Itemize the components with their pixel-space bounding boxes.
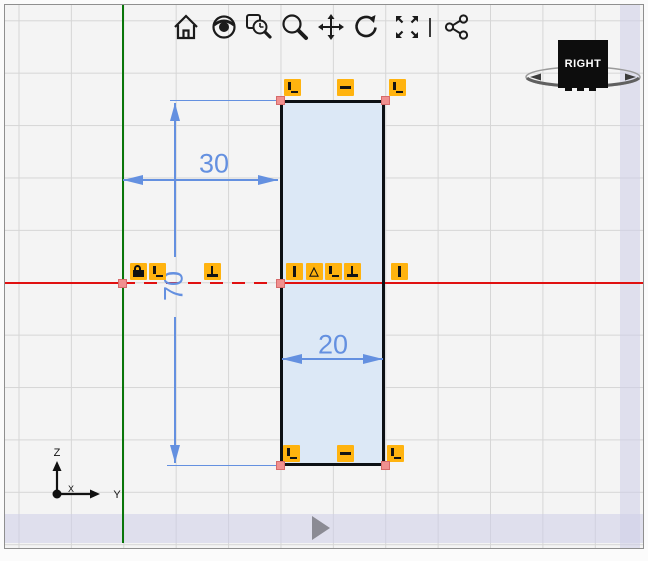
orientation-triad: Z Y X [27, 443, 127, 515]
zoom-icon[interactable] [280, 12, 310, 42]
dimension-70-line-lower[interactable] [174, 317, 176, 463]
zoom-window-icon[interactable] [244, 12, 274, 42]
dimension-70-line-upper[interactable] [174, 103, 176, 257]
constraint-horizontal-badge[interactable] [337, 79, 354, 96]
constraint-horizontal-badge[interactable] [337, 445, 354, 462]
dimension-20-arrow-left [282, 354, 302, 364]
view-cube-hidden-edge [565, 88, 572, 91]
sketch-vertex-point[interactable] [381, 96, 390, 105]
view-cube-hidden-edge [589, 88, 596, 91]
dimension-70-arrow-down [170, 445, 180, 463]
constraint-perpendicular-badge[interactable] [204, 263, 221, 280]
sketch-viewport: 30 70 20 △ [4, 4, 644, 549]
constraint-coincident-badge[interactable] [325, 263, 342, 280]
dimension-30-arrow-left [123, 175, 143, 185]
constraint-coincident-badge[interactable] [149, 263, 166, 280]
share-view-icon[interactable] [442, 12, 472, 42]
constraint-vertical-badge[interactable] [286, 263, 303, 280]
sketch-vertex-point[interactable] [276, 461, 285, 470]
sketch-rectangle-outline[interactable] [280, 100, 385, 466]
dimension-70-arrow-up [170, 103, 180, 121]
view-cube-label: RIGHT [565, 58, 602, 70]
sketch-vertex-point[interactable] [276, 279, 285, 288]
dimension-30-value[interactable]: 30 [199, 151, 229, 178]
triad-z-label: Z [54, 447, 61, 459]
rotate-icon[interactable] [351, 12, 381, 42]
view-cube-hidden-edge [577, 88, 584, 91]
constraint-triangle-badge[interactable]: △ [306, 263, 323, 280]
home-icon[interactable] [171, 12, 201, 42]
dimension-20-value[interactable]: 20 [318, 332, 348, 359]
pan-icon[interactable] [316, 12, 346, 42]
sketch-vertex-point[interactable] [118, 279, 127, 288]
constraint-vertical-badge[interactable] [391, 263, 408, 280]
triad-y-label: Y [113, 489, 121, 501]
view-orientation-icon[interactable] [209, 12, 239, 42]
constraint-perpendicular-badge[interactable] [344, 263, 361, 280]
zoom-to-fit-icon[interactable] [392, 12, 422, 42]
dimension-20-arrow-right [363, 354, 383, 364]
timeline-expand-button[interactable] [312, 516, 330, 540]
constraint-coincident-badge[interactable] [389, 79, 406, 96]
dimension-70-extension-top [170, 100, 283, 102]
sketch-axis-horizontal-dashed[interactable] [122, 282, 280, 284]
dimension-30-arrow-right [258, 175, 278, 185]
constraint-coincident-badge[interactable] [283, 445, 300, 462]
sketch-axis-horizontal[interactable] [5, 282, 122, 284]
dimension-70-extension-bottom [167, 465, 283, 467]
constraint-coincident-badge[interactable] [284, 79, 301, 96]
toolbar-separator [429, 18, 431, 37]
sketch-vertex-point[interactable] [276, 96, 285, 105]
cad-application-window: 30 70 20 △ [0, 0, 648, 561]
sketch-vertex-point[interactable] [381, 461, 390, 470]
constraint-coincident-badge[interactable] [387, 445, 404, 462]
dimension-30-line[interactable] [123, 179, 278, 181]
constraint-lock-badge[interactable] [130, 263, 147, 280]
view-cube-face-right[interactable]: RIGHT [558, 40, 608, 88]
triad-x-label: X [68, 484, 74, 494]
